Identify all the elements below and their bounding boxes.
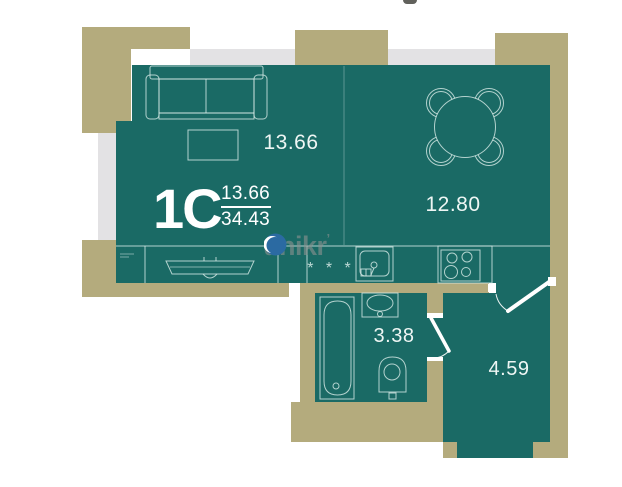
washer-marks: * * * xyxy=(307,260,355,277)
wall-flank-left xyxy=(443,442,457,458)
wall-bath-hall-lower xyxy=(427,358,443,402)
watermark-text-suffix: r xyxy=(317,233,327,260)
wall-right xyxy=(550,65,568,458)
floor-living-kitchen xyxy=(116,65,550,283)
clipped-logo-artifact xyxy=(403,0,417,4)
wall-bathroom-left xyxy=(300,293,315,402)
area-total: 34.43 xyxy=(221,210,273,230)
wall-bottom-living xyxy=(82,283,289,297)
wall-over-bathroom xyxy=(300,283,489,293)
room-area-bathroom: 3.38 xyxy=(368,325,420,348)
apartment-type-label: 1C xyxy=(153,181,221,237)
wall-top-right-block xyxy=(495,33,568,65)
area-ratio: 13.66 34.43 xyxy=(221,184,273,230)
floor-plan: * * * 13.66 12.80 3.38 4.59 1C 13.66 34.… xyxy=(0,0,622,487)
watermark-tick: ’ xyxy=(327,231,331,246)
room-area-kitchen: 12.80 xyxy=(420,193,486,217)
area-living-total: 13.66 xyxy=(221,184,273,204)
entry-door-jamb xyxy=(488,284,496,292)
room-area-living: 13.66 xyxy=(259,131,323,155)
watermark-moon-icon xyxy=(264,233,287,256)
ratio-divider-line xyxy=(221,206,271,208)
wall-under-bathroom xyxy=(291,402,443,442)
wall-top-mid-block xyxy=(295,30,388,65)
floor-hall-column xyxy=(457,442,533,458)
wall-flank-right xyxy=(533,442,550,458)
room-area-hallway: 4.59 xyxy=(482,358,536,381)
bath-door-jamb-top xyxy=(427,313,443,318)
left-window-band xyxy=(98,133,116,240)
watermark: unik r ’ xyxy=(263,233,330,260)
